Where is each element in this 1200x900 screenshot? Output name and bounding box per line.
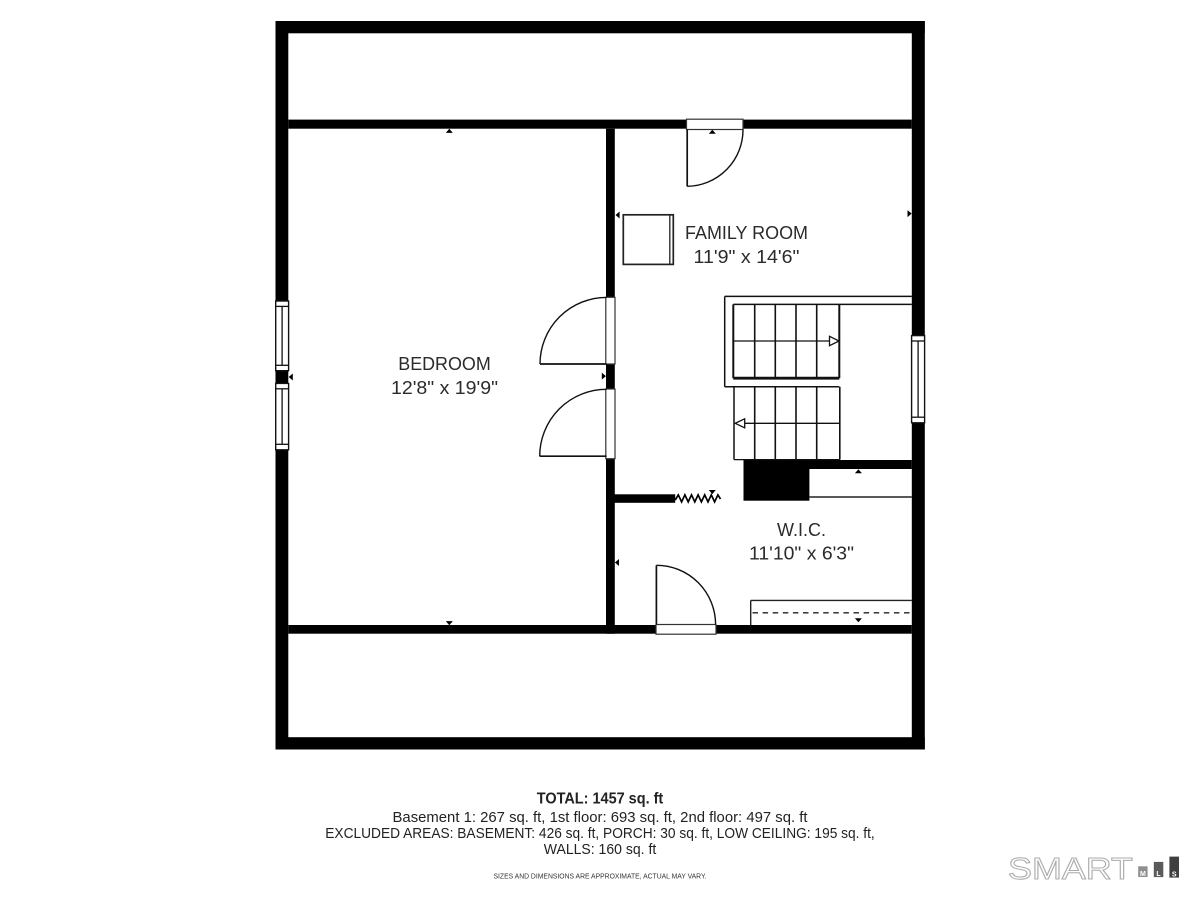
svg-text:SMART: SMART	[1008, 851, 1133, 886]
svg-text:FAMILY ROOM: FAMILY ROOM	[685, 222, 808, 243]
svg-text:BEDROOM: BEDROOM	[398, 353, 491, 374]
svg-text:12'8" x 19'9": 12'8" x 19'9"	[391, 377, 498, 398]
svg-text:SIZES AND DIMENSIONS ARE APPRO: SIZES AND DIMENSIONS ARE APPROXIMATE, AC…	[494, 873, 707, 880]
svg-text:EXCLUDED AREAS: BASEMENT: 426: EXCLUDED AREAS: BASEMENT: 426 sq. ft, PO…	[325, 825, 875, 842]
svg-text:M: M	[1140, 871, 1146, 878]
svg-text:Basement 1: 267 sq. ft, 1st fl: Basement 1: 267 sq. ft, 1st floor: 693 s…	[393, 809, 809, 826]
svg-text:WALLS: 160 sq. ft: WALLS: 160 sq. ft	[544, 841, 657, 858]
svg-text:L: L	[1156, 871, 1161, 878]
svg-text:S: S	[1172, 871, 1177, 878]
svg-text:11'9" x 14'6": 11'9" x 14'6"	[694, 246, 800, 267]
svg-text:W.I.C.: W.I.C.	[777, 519, 826, 540]
svg-text:11'10" x 6'3": 11'10" x 6'3"	[749, 543, 854, 564]
svg-text:TOTAL: 1457 sq. ft: TOTAL: 1457 sq. ft	[537, 791, 664, 808]
